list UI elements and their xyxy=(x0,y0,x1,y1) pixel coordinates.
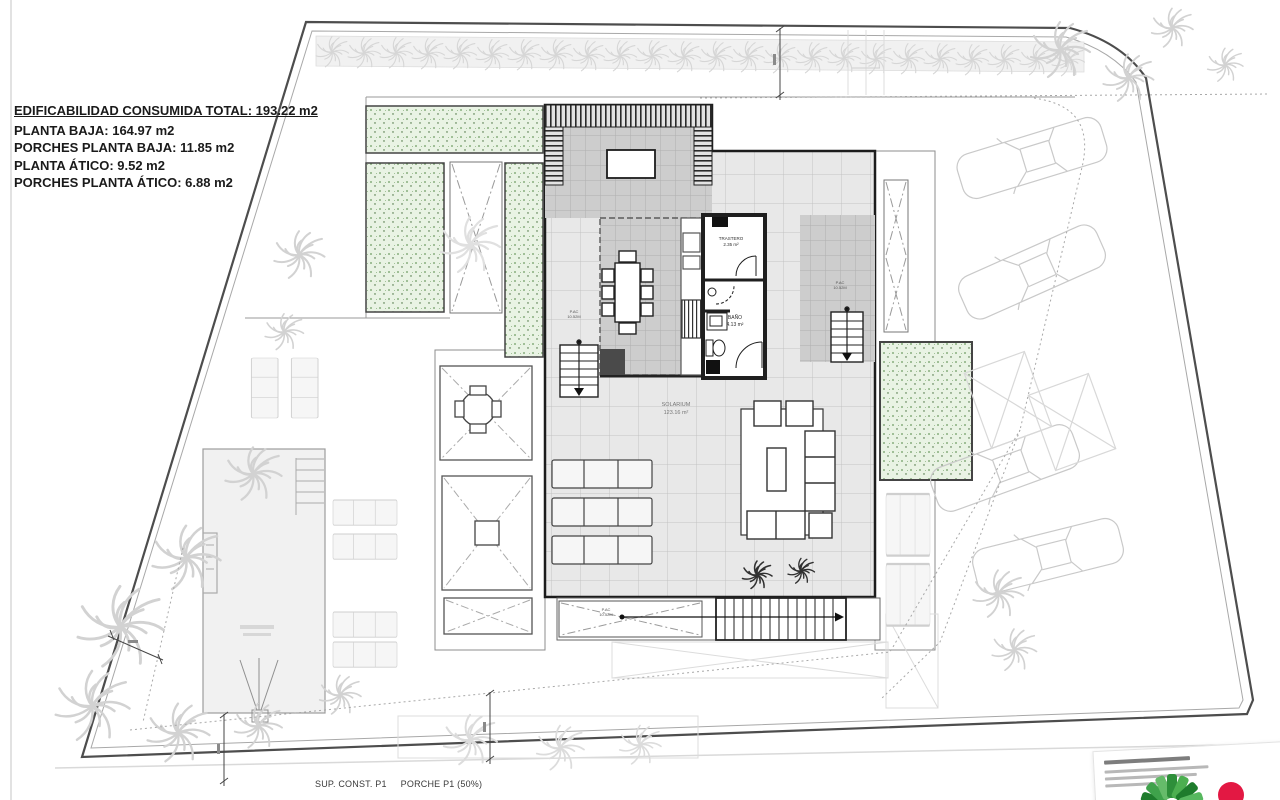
slope-note-2-l2: 10.52M xyxy=(826,286,854,291)
coffee-table xyxy=(767,448,786,491)
slope-note-3: P.AC 10.52M xyxy=(592,608,620,618)
kitchen-counter xyxy=(681,218,703,375)
porch-pergolas xyxy=(440,366,532,634)
bano-area: 4.13 m² xyxy=(712,322,758,329)
duct-1 xyxy=(712,217,728,227)
slope-note-1: P.AC 10.52M xyxy=(560,310,588,320)
footer-porche: PORCHE P1 (50%) xyxy=(401,779,483,789)
title-line-2: PORCHES PLANTA BAJA: 11.85 m2 xyxy=(14,139,334,157)
green-fan-logo xyxy=(1140,774,1204,800)
trastero-area: 2.35 m² xyxy=(704,242,758,248)
armchair-1 xyxy=(754,401,781,426)
red-dot-logo xyxy=(1218,782,1244,800)
slope-note-1-l2: 10.52M xyxy=(560,315,588,320)
armchair-2 xyxy=(786,401,813,426)
floor-plan-sheet: EDIFICABILIDAD CONSUMIDA TOTAL: 193.22 m… xyxy=(0,0,1280,800)
footer-sup-const: SUP. CONST. P1 xyxy=(315,779,387,789)
stamp-logo xyxy=(1130,758,1280,800)
top-hedge xyxy=(316,36,1085,76)
bottom-stair-strip xyxy=(557,598,880,640)
slope-note-2: P.AC 10.52M xyxy=(826,281,854,291)
skylight xyxy=(607,150,655,178)
pool-label-bar-1 xyxy=(240,625,274,629)
trastero-label: TRASTERO 2.35 m² xyxy=(704,236,758,248)
pool-label-bar-2 xyxy=(243,633,271,636)
stair-right xyxy=(831,307,863,362)
solarium-label: SOLARIUM 123.16 m² xyxy=(630,402,722,417)
pergola-table xyxy=(475,521,499,545)
bano-label: BAÑO 4.13 m² xyxy=(712,315,758,328)
stair-left xyxy=(560,340,598,397)
solarium-area: 123.16 m² xyxy=(630,410,722,418)
side-table xyxy=(809,513,832,538)
solarium-name: SOLARIUM xyxy=(630,402,722,410)
title-line-4: PORCHES PLANTA ÁTICO: 6.88 m2 xyxy=(14,174,334,192)
deck-loungers xyxy=(552,460,652,564)
round-table xyxy=(461,392,495,426)
title-total: EDIFICABILIDAD CONSUMIDA TOTAL: 193.22 m… xyxy=(14,102,334,120)
pool xyxy=(203,449,325,722)
sofa-right xyxy=(805,431,835,511)
title-line-1: PLANTA BAJA: 164.97 m2 xyxy=(14,122,334,140)
slope-note-3-l2: 10.52M xyxy=(592,613,620,618)
chimney-block xyxy=(600,349,625,375)
duct-2 xyxy=(706,360,720,374)
sheet-footer: SUP. CONST. P1 PORCHE P1 (50%) xyxy=(315,779,482,789)
title-block: EDIFICABILIDAD CONSUMIDA TOTAL: 193.22 m… xyxy=(14,102,334,192)
title-line-3: PLANTA ÁTICO: 9.52 m2 xyxy=(14,157,334,175)
sofa-set xyxy=(741,401,835,539)
